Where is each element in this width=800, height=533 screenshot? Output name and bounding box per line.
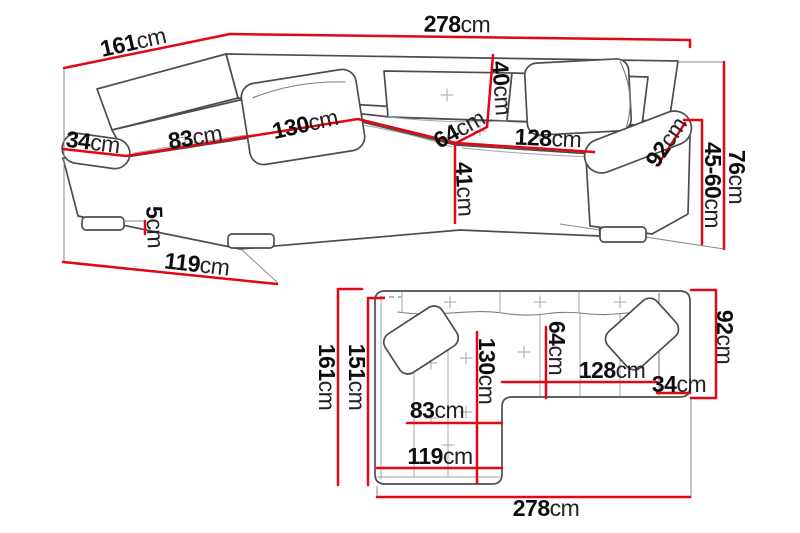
dim-label-armrest-depth: 92cm [712, 310, 738, 364]
dim-unit: cm [452, 186, 480, 217]
dim-value: 128 [514, 124, 553, 152]
dim-unit: cm [89, 129, 122, 158]
perspective-view: 278cm 161cm 34cm 83cm 130cm 40cm 64cm 12… [60, 11, 750, 284]
dim-label-seat-front-height: 41cm [451, 161, 480, 217]
dim-label-total-depth: 161cm [314, 344, 340, 411]
dim-unit: cm [712, 334, 738, 364]
dim-value: 34 [652, 371, 677, 397]
dim-unit: cm [616, 357, 646, 383]
dim-label-total-height: 76cm [724, 150, 750, 204]
dim-label-chaise-outer-length: 119cm [407, 443, 472, 469]
dim-label-leg-height: 5cm [141, 206, 168, 249]
dim-value: 278 [513, 495, 551, 521]
dim-unit: cm [474, 375, 500, 405]
dim-unit: cm [190, 120, 223, 150]
dim-value: 76 [724, 150, 750, 175]
dim-label-seat-height-range: 45-60cm [700, 142, 726, 228]
dim-value: 45-60 [700, 142, 726, 198]
dim-unit: cm [198, 251, 230, 280]
dim-label-inner-depth: 151cm [344, 344, 370, 411]
sofa-leg [82, 217, 124, 230]
dim-label-corner-seat-depth: 64cm [544, 321, 570, 375]
plan-view: 161cm 151cm 130cm 64cm 128cm 34cm 83cm 1… [314, 289, 738, 521]
dim-unit: cm [314, 381, 340, 411]
dim-unit: cm [550, 495, 580, 521]
dim-unit: cm [460, 11, 490, 37]
dim-value: 64 [544, 321, 570, 346]
dim-value: 161 [98, 28, 140, 62]
dim-label-total-width: 278cm [424, 11, 491, 38]
dim-label-total-width: 278cm [513, 495, 580, 521]
dim-value: 41 [451, 161, 478, 188]
dim-label-seat-width: 128cm [514, 124, 582, 153]
dim-unit: cm [544, 345, 570, 375]
dim-unit: cm [344, 381, 370, 411]
dim-unit: cm [134, 22, 169, 54]
dim-unit: cm [443, 443, 473, 469]
dim-value: 119 [163, 247, 201, 277]
dim-label-backrest-height: 40cm [487, 60, 517, 116]
dim-value: 128 [579, 357, 617, 383]
dim-unit: cm [142, 218, 169, 249]
dim-unit: cm [489, 85, 517, 116]
dim-value: 161 [314, 344, 340, 382]
dim-label-armrest-width: 34cm [652, 371, 706, 397]
extension-line [242, 250, 278, 283]
dim-value: 83 [410, 397, 435, 423]
dim-unit: cm [700, 198, 726, 228]
dim-label-chaise-outer-length: 119cm [163, 247, 231, 280]
dim-label-chaise-seat-length: 130cm [474, 338, 500, 405]
sofa-leg [228, 234, 274, 248]
dim-value: 92 [712, 310, 738, 335]
dim-value: 151 [344, 344, 370, 382]
dim-label-seat-width: 128cm [579, 357, 646, 383]
dim-label-chaise-seat-width: 83cm [410, 397, 464, 423]
dim-unit: cm [434, 397, 464, 423]
dim-label-side-depth: 161cm [98, 22, 169, 62]
dim-value: 130 [474, 338, 500, 375]
dim-unit: cm [676, 371, 706, 397]
sofa-leg [600, 227, 646, 242]
dim-value: 119 [407, 443, 443, 469]
diagram-canvas: 278cm 161cm 34cm 83cm 130cm 40cm 64cm 12… [0, 0, 800, 533]
sofa-dimensions-diagram: 278cm 161cm 34cm 83cm 130cm 40cm 64cm 12… [0, 0, 800, 533]
dim-value: 278 [424, 11, 462, 37]
dim-unit: cm [551, 125, 582, 152]
dim-unit: cm [724, 174, 750, 204]
dim-value: 40 [487, 60, 515, 86]
